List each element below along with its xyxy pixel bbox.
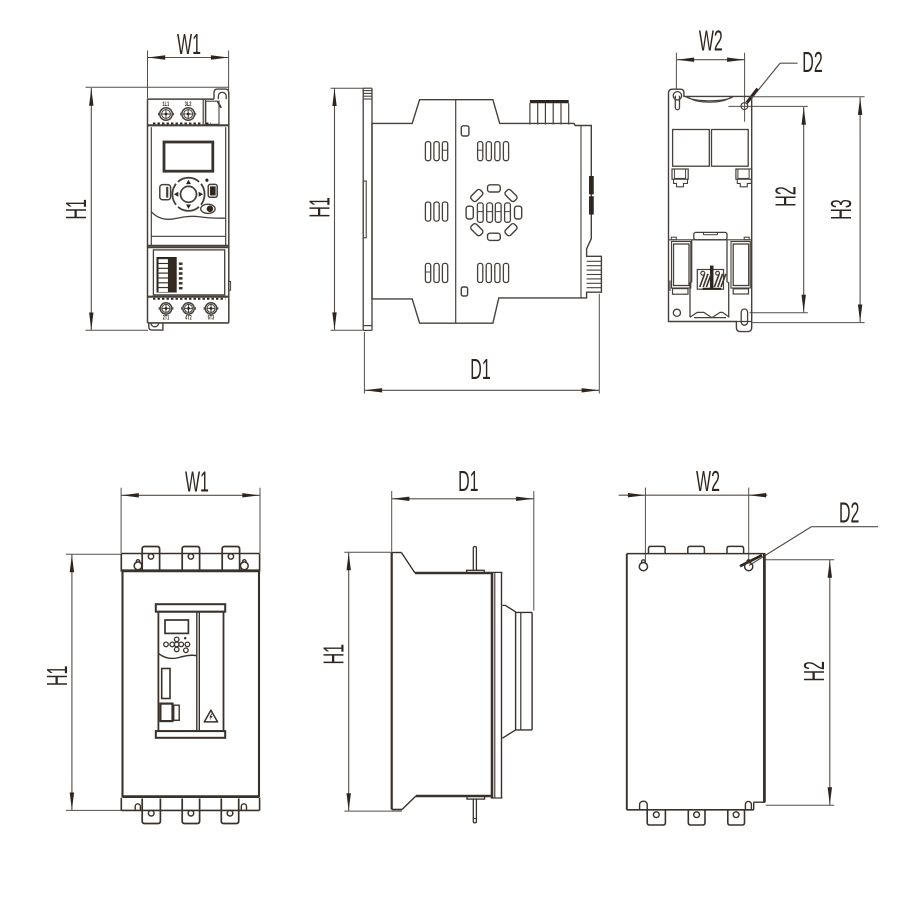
svg-text:H1: H1 bbox=[60, 199, 92, 219]
svg-text:W2: W2 bbox=[699, 24, 723, 56]
svg-text:6T3: 6T3 bbox=[208, 315, 215, 322]
svg-text:H1: H1 bbox=[318, 644, 350, 664]
svg-text:4T2: 4T2 bbox=[185, 315, 192, 322]
svg-text:H2: H2 bbox=[770, 186, 802, 206]
svg-text:D1: D1 bbox=[470, 353, 490, 385]
svg-text:D2: D2 bbox=[802, 46, 822, 78]
svg-text:H2: H2 bbox=[798, 661, 830, 681]
svg-text:D2: D2 bbox=[839, 497, 859, 529]
svg-text:W2: W2 bbox=[696, 465, 720, 497]
svg-text:D1: D1 bbox=[458, 465, 478, 497]
svg-text:H1: H1 bbox=[303, 197, 335, 217]
svg-text:W1: W1 bbox=[185, 466, 209, 498]
svg-text:W1: W1 bbox=[177, 28, 201, 60]
svg-text:2T1: 2T1 bbox=[163, 315, 170, 322]
svg-text:3L2: 3L2 bbox=[185, 101, 192, 108]
svg-text:H3: H3 bbox=[825, 199, 857, 219]
svg-text:H1: H1 bbox=[41, 666, 73, 686]
svg-text:1L1: 1L1 bbox=[162, 101, 169, 108]
